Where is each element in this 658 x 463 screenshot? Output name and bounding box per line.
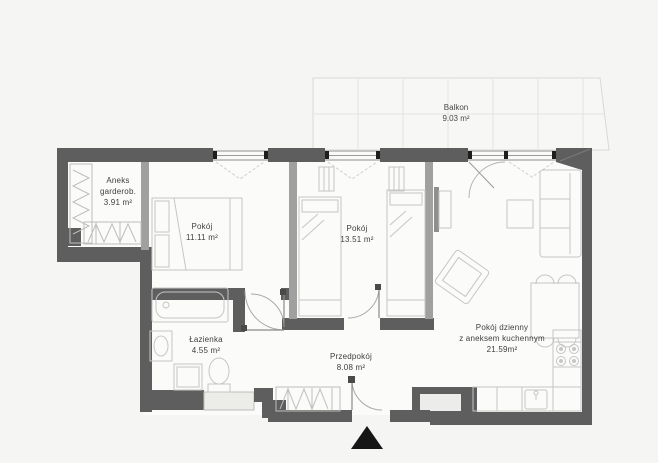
wall-left-garderoba bbox=[57, 148, 68, 262]
wall-right bbox=[582, 162, 592, 425]
label-dzienny-name2: z aneksem kuchennym bbox=[459, 334, 545, 343]
wall-room2-bottom-left bbox=[282, 318, 344, 330]
label-dzienny-name: Pokój dzienny bbox=[476, 323, 528, 332]
label-pokoj1-area: 11.11 m² bbox=[186, 233, 218, 242]
label-lazienka-area: 4.55 m² bbox=[192, 346, 221, 355]
floor-plan-svg: Balkon 9.03 m² Aneks garderob. 3.91 m² P… bbox=[0, 0, 658, 463]
label-balkon-name: Balkon bbox=[444, 103, 468, 112]
wall-room1-bottom bbox=[140, 288, 245, 300]
wall-left-bath bbox=[140, 247, 152, 412]
wall-top-3 bbox=[380, 148, 468, 162]
wall-garderoba-bottom bbox=[57, 247, 150, 262]
label-przedpokoj-area: 8.08 m² bbox=[337, 363, 366, 372]
floor-plan-page: Balkon 9.03 m² Aneks garderob. 3.91 m² P… bbox=[0, 0, 658, 463]
label-przedpokoj-name: Przedpokój bbox=[330, 352, 372, 361]
label-pokoj1-name: Pokój bbox=[191, 222, 212, 231]
label-pokoj2-area: 13.51 m² bbox=[340, 235, 373, 244]
partition-room2-right bbox=[425, 162, 433, 319]
wall-bottom-hall-right bbox=[390, 410, 430, 422]
wall-bottom-bath-2 bbox=[254, 388, 273, 402]
label-aneks-area: 3.91 m² bbox=[104, 198, 133, 207]
wall-top-2 bbox=[268, 148, 325, 162]
wall-room2-bottom-right bbox=[380, 318, 434, 330]
entrance-arrow-icon bbox=[351, 426, 383, 449]
label-aneks-name2: garderob. bbox=[100, 187, 136, 196]
label-aneks-name: Aneks bbox=[106, 176, 129, 185]
label-lazienka-name: Łazienka bbox=[189, 335, 223, 344]
shaft-interior bbox=[420, 394, 461, 411]
label-balkon-area: 9.03 m² bbox=[442, 114, 469, 123]
label-dzienny-area: 21.59m² bbox=[487, 345, 518, 354]
wall-top-1 bbox=[57, 148, 213, 162]
label-pokoj2-name: Pokój bbox=[346, 224, 367, 233]
bath-niche bbox=[204, 392, 254, 410]
partition-room2-left bbox=[289, 162, 297, 319]
partition-garderoba bbox=[141, 162, 149, 250]
tv bbox=[434, 187, 439, 232]
